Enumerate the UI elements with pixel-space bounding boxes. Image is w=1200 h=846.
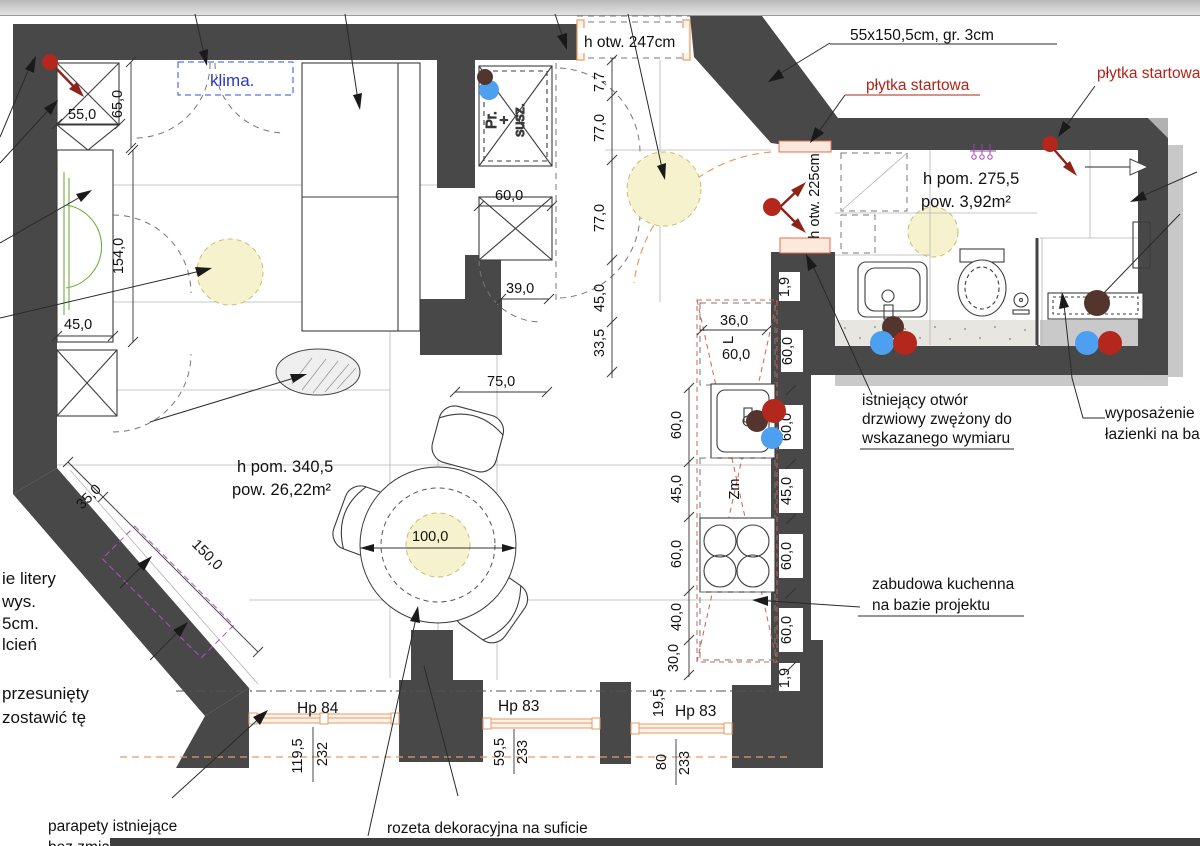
dim-chain-77b: 77,0 [592,204,608,232]
kitchen-left-30: 30,0 [666,644,682,672]
dim-60-l: 60,0 [722,347,750,363]
zm-label: Zm [727,479,743,500]
cut-lower-line1: przesunięty [2,684,89,703]
dim-65: 65,0 [110,90,126,118]
hp84-sill: 119,5 [290,738,306,773]
dim-chain-77a: 77,0 [592,114,608,142]
ceiling-rosette-ellipse [276,349,360,395]
lower-cabinet [57,350,117,416]
floorplan-page: h otw. 247cm [0,0,1200,846]
kitchen-wall-60c: 60,0 [779,616,795,644]
dim-75: 75,0 [487,374,515,390]
klima-label: klima. [210,71,254,90]
dim-100: 100,0 [412,529,448,545]
dim-36: 36,0 [720,313,748,329]
hp83b-height: 233 [677,751,693,775]
plytka-startowa-2: płytka startowa [1097,65,1200,82]
tile-start-dot [763,198,781,216]
dim-1-9-top: 1,9 [777,277,793,297]
klima-zone: klima. [178,62,293,95]
dim-55: 55,0 [68,107,96,123]
sideboard [57,150,113,342]
h-otw-247-label: h otw. 247cm [584,34,675,51]
wyposazenie-line2: łazienki na ba [1105,426,1200,443]
zabudowa-line2: na bazie projektu [872,597,990,614]
living-height-label: h pom. 340,5 [237,458,333,476]
hp83a-height: 233 [515,740,531,764]
dining-table [328,402,533,649]
countertop-label: 55x150,5cm, gr. 3cm [850,27,994,44]
bottom-dark-strip [110,838,1200,846]
kitchen-left-40: 40,0 [669,603,685,631]
bath-sink [858,262,927,319]
cut-upper-line4: lcień [2,635,37,654]
susz-label: susz. [512,103,528,137]
cooktop [700,518,775,592]
h-otw-225-label: h otw. 225cm [807,153,823,238]
dim-45: 45,0 [64,317,92,333]
floorplan-drawing: h otw. 247cm [0,0,1200,846]
rozeta-label: rozeta dekoracyjna na suficie [387,820,588,837]
dim-150: 150,0 [188,537,225,574]
plytka-startowa-1: płytka startowa [866,77,970,94]
kitchen-wall-60b: 60,0 [779,542,795,570]
cut-upper-line3: 5cm. [2,614,39,633]
bath-area-label: pow. 3,92m² [921,193,1011,211]
hp83a-label: Hp 83 [498,698,539,715]
dim-19-5: 19,5 [651,689,667,717]
zabudowa-line1: zabudowa kuchenna [872,576,1015,593]
dim-chain-33-5: 33,5 [592,329,608,357]
dim-chain-7-7: 7,7 [592,72,608,92]
window-hp83a [483,718,600,729]
istniejacy-line2: drzwiowy zwężony do [862,411,1012,428]
parapety-line1: parapety istniejące [48,818,177,835]
bath-height-label: h pom. 275,5 [923,170,1019,188]
istniejacy-line1: istniejący otwór [862,392,968,409]
parapety-line2: bez zmian [48,839,119,846]
hp83b-sill: 80 [654,754,670,770]
sofa-wardrobe [302,63,420,331]
bath-passage: h otw. 225cm [779,141,831,253]
living-area-label: pow. 26,22m² [232,481,332,499]
hp83b-label: Hp 83 [675,703,716,720]
hp84-height: 232 [315,742,331,766]
window-hp83b [631,723,732,734]
kitchen-left-60a: 60,0 [669,411,685,439]
cut-upper-line1: ie litery [2,569,56,588]
hp84-label: Hp 84 [297,700,339,717]
dim-chain-45: 45,0 [592,284,608,312]
dim-154: 154,0 [111,238,127,274]
cut-lower-line2: zostawić tę [2,708,86,727]
dim-39: 39,0 [506,281,534,297]
kitchen-left-45: 45,0 [669,475,685,503]
dim-60-closet: 60,0 [495,188,523,204]
toilet [958,249,1006,316]
istniejacy-line3: wskazanego wymiaru [861,430,1010,447]
cut-upper-line2: wys. [1,592,36,611]
walls [13,16,1168,768]
hp83a-sill: 59,5 [492,738,508,766]
dim-60-box-top: 60,0 [780,337,796,365]
kitchen-wall-1-9: 1,9 [777,668,793,688]
toilet-paper-holder [1013,293,1029,314]
dim-L: L [721,336,737,344]
kitchen-wall-45: 45,0 [779,477,795,505]
chair [428,402,507,475]
plus-label: + [497,116,513,124]
tile-start-dot [42,54,58,70]
kitchen-left-60b: 60,0 [669,540,685,568]
wyposazenie-line1: wyposażenie [1104,405,1195,422]
tile-start-dot [1042,136,1058,152]
